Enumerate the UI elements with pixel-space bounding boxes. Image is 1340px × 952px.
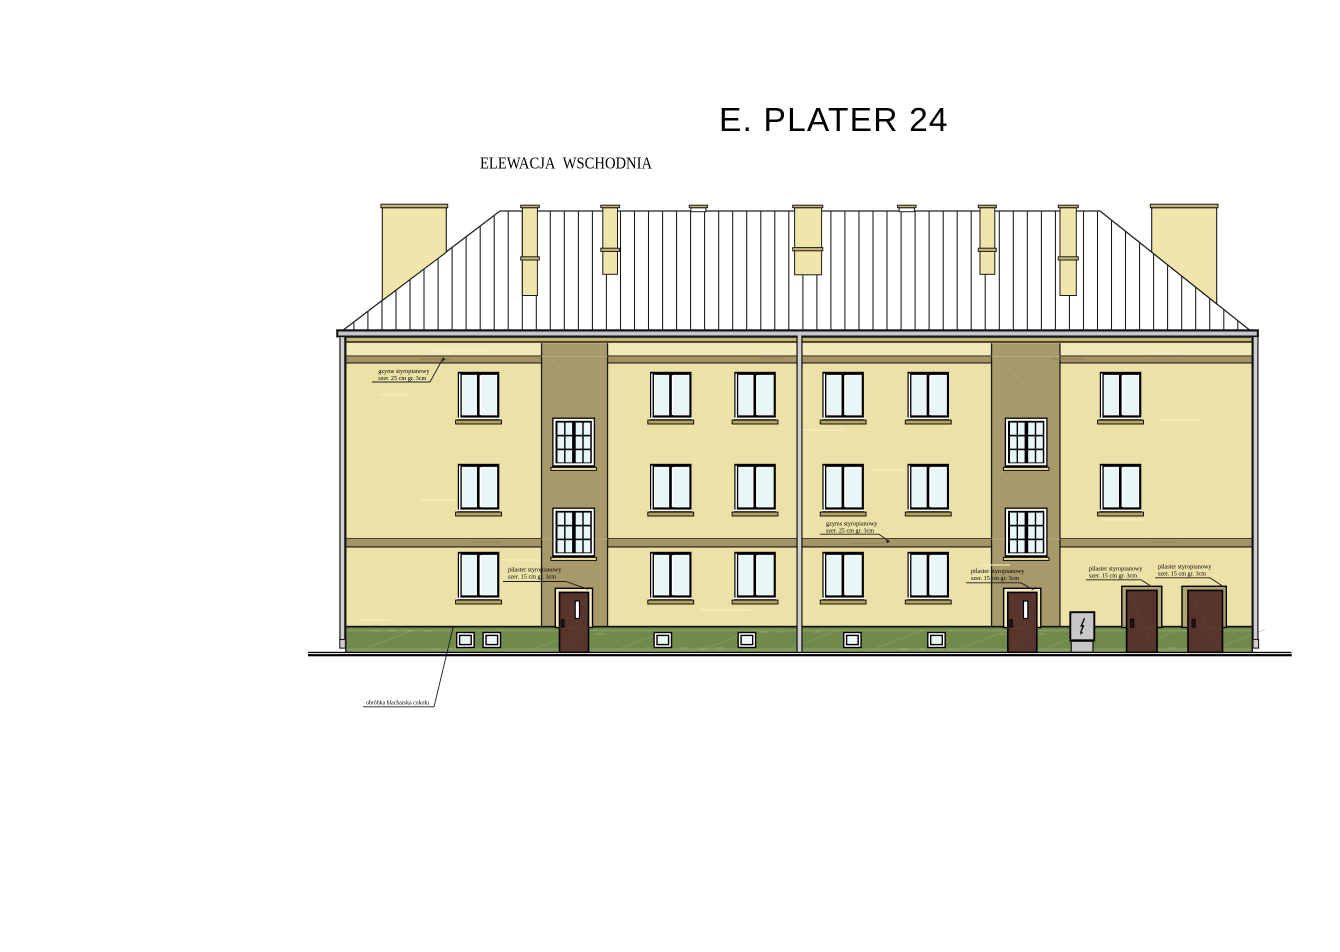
svg-text:szer. 25 cm gr. 3cm: szer. 25 cm gr. 3cm xyxy=(826,528,874,535)
svg-text:pilaster styropianowy: pilaster styropianowy xyxy=(508,567,562,574)
svg-text:szer. 25 cm gr. 3cm: szer. 25 cm gr. 3cm xyxy=(378,375,426,382)
svg-text:gzyms styropianowy: gzyms styropianowy xyxy=(378,368,430,375)
svg-text:szer. 15 cm gr. 3cm: szer. 15 cm gr. 3cm xyxy=(1089,573,1137,580)
svg-text:pilaster styropianowy: pilaster styropianowy xyxy=(971,568,1025,575)
svg-text:szer. 15 cm gr. 3cm: szer. 15 cm gr. 3cm xyxy=(1158,571,1206,578)
svg-text:szer. 15 cm gr. 3cm: szer. 15 cm gr. 3cm xyxy=(971,575,1019,582)
svg-text:E. PLATER 24: E. PLATER 24 xyxy=(719,102,949,139)
svg-text:szer. 15 cm gr. 3cm: szer. 15 cm gr. 3cm xyxy=(508,574,556,581)
svg-text:pilaster styropianowy: pilaster styropianowy xyxy=(1158,564,1212,571)
svg-text:gzyms styropianowy: gzyms styropianowy xyxy=(826,521,878,528)
svg-text:ELEWACJA WSCHODNIA: ELEWACJA WSCHODNIA xyxy=(480,154,653,173)
svg-text:pilaster styropianowy: pilaster styropianowy xyxy=(1089,566,1143,573)
svg-text:obróbka blacharska cokołu: obróbka blacharska cokołu xyxy=(366,700,429,707)
